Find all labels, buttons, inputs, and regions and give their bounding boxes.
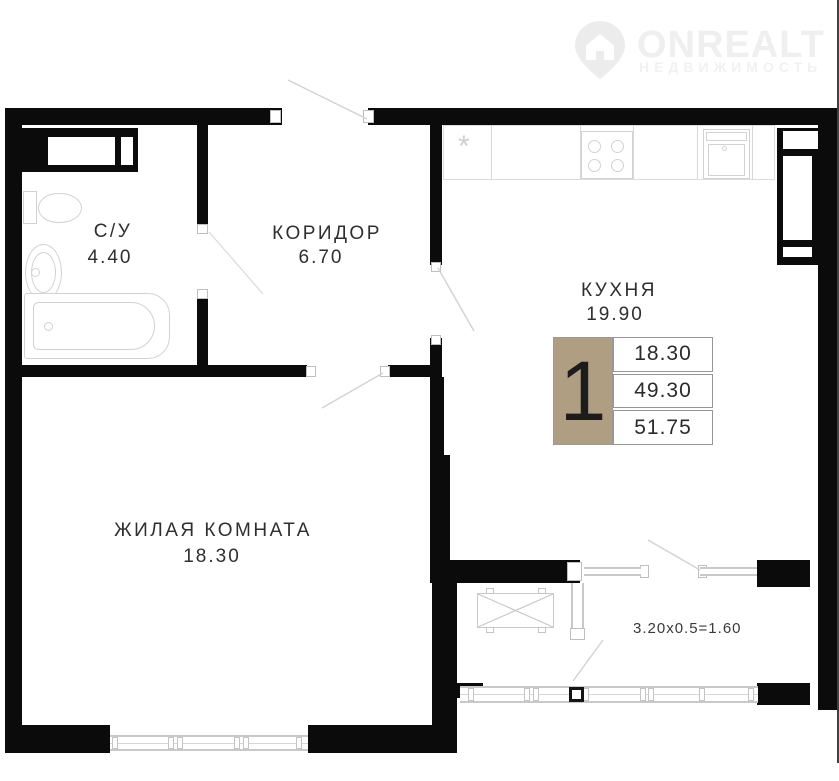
living-door-jamb-left [306, 366, 316, 377]
balcony-window-tick-1 [468, 688, 474, 701]
onrealt-pin-house-icon [574, 20, 626, 80]
balcony-window-tick-2 [524, 688, 530, 701]
kitchen-balcony-wall-end-jamb [567, 562, 582, 581]
stove-burner-2 [611, 140, 624, 153]
balcony-window-tick-8 [748, 688, 754, 701]
kitchen-door-swing-line [438, 268, 474, 331]
washbasin-drain-symbol [31, 268, 40, 277]
living-window-tick-6 [296, 737, 302, 749]
living-window-tick-5 [243, 737, 249, 749]
bathroom-door-jamb-top [197, 224, 208, 234]
stove-burner-1 [588, 140, 601, 153]
toilet-bowl-symbol [38, 193, 82, 223]
stove-burner-4 [611, 159, 624, 172]
balcony-cabinet-leg-4 [538, 627, 546, 633]
living-door-jamb-right [380, 366, 390, 377]
counter-divider-3 [633, 125, 634, 180]
area-table: 18.30 49.30 51.75 [613, 337, 713, 445]
wall-corridor-kitchen-upper [430, 125, 442, 265]
balcony-top-window-right [700, 567, 757, 576]
total-area-cell: 51.75 [613, 410, 713, 445]
wall-balcony-right-top [757, 560, 810, 587]
bathroom-door-jamb-bottom [197, 289, 208, 299]
balcony-cabinet-leg-3 [486, 627, 494, 633]
wall-left [5, 108, 22, 753]
wall-right [818, 108, 838, 710]
kitchen-door-jamb-bottom [431, 335, 441, 345]
kitchen-sink-topbar-symbol [706, 132, 747, 141]
living-window-tick-3 [177, 737, 183, 749]
balcony-window-jamb-left [640, 565, 649, 578]
vent-shaft-kitchen-cell-top [783, 131, 818, 149]
usable-area-cell: 49.30 [613, 374, 713, 409]
wall-bathroom-bottom [22, 365, 307, 377]
kitchen-area: 19.90 [586, 304, 644, 326]
wall-bathroom-right-upper [197, 125, 208, 226]
onrealt-tagline: НЕДВИЖИМОСТЬ [639, 59, 822, 75]
balcony-glazing-cap [570, 628, 585, 640]
living-room-label: ЖИЛАЯ КОМНАТА [114, 520, 312, 542]
room-count-cell: 1 [553, 337, 613, 445]
counter-divider-4 [697, 125, 698, 180]
entrance-door-jamb-right [363, 110, 374, 123]
floorplan-page: { "watermark": { "brand": "ONREALT", "ta… [0, 0, 839, 781]
balcony-window-tick-5 [640, 688, 646, 701]
balcony-door-swing-line-upper [648, 540, 700, 570]
wall-living-kitchen-upper [430, 377, 444, 455]
corridor-label: КОРИДОР [272, 223, 382, 245]
vent-shaft-kitchen-cell-small [783, 247, 812, 257]
balcony-dimensions-label: 3.20x0.5=1.60 [633, 620, 742, 637]
bathroom-label: С/У [94, 221, 133, 243]
balcony-window-tick-3 [533, 688, 539, 701]
corridor-area: 6.70 [299, 247, 344, 269]
balcony-window-tick-6 [648, 688, 654, 701]
living-room-area: 18.30 [183, 546, 241, 568]
balcony-cabinet-leg-1 [486, 588, 494, 594]
fridge-symbol: * [458, 130, 470, 164]
kitchen-sink-tap-symbol [722, 146, 727, 151]
balcony-door-swing-line-lower [573, 640, 603, 681]
balcony-bottom-window [460, 686, 758, 703]
counter-divider-5 [752, 125, 753, 180]
living-window-tick-2 [168, 737, 174, 749]
balcony-cabinet-symbol [477, 593, 554, 628]
bathroom-area: 4.40 [88, 247, 133, 269]
wall-top-right [368, 108, 838, 125]
wall-bottom-left [5, 725, 110, 753]
living-window-tick-1 [112, 737, 118, 749]
entrance-door-jamb-left [270, 110, 281, 123]
counter-divider-1 [491, 125, 492, 180]
kitchen-door-jamb-top [431, 262, 441, 272]
bathroom-door-swing-line [209, 232, 263, 294]
balcony-glazing-return [571, 583, 584, 629]
kitchen-label: КУХНЯ [581, 280, 657, 302]
toilet-tank-symbol [23, 191, 37, 224]
stove-burner-3 [588, 159, 601, 172]
balcony-door-pivot [569, 687, 584, 702]
wall-balcony-right-bottom [757, 683, 810, 705]
living-area-cell: 18.30 [613, 337, 713, 372]
wall-bottom-right [308, 725, 457, 753]
wall-top-left [5, 108, 282, 125]
living-room-window [110, 735, 308, 751]
vent-shaft-bathroom-cell [48, 137, 115, 165]
vent-shaft-bathroom-cell-small [121, 137, 133, 165]
entrance-door-swing-line [288, 80, 367, 119]
balcony-window-tick-7 [699, 688, 705, 701]
living-window-tick-4 [234, 737, 240, 749]
balcony-top-window-left [584, 567, 641, 576]
vent-shaft-kitchen-cell-main [783, 156, 812, 240]
stove-symbol [581, 131, 633, 179]
balcony-cabinet-leg-2 [538, 588, 546, 594]
bathtub-drain-symbol [44, 322, 53, 331]
wall-kitchen-balcony [440, 560, 580, 583]
living-door-swing-line [322, 373, 383, 408]
apartment-info-badge: 1 18.30 49.30 51.75 [553, 337, 713, 445]
